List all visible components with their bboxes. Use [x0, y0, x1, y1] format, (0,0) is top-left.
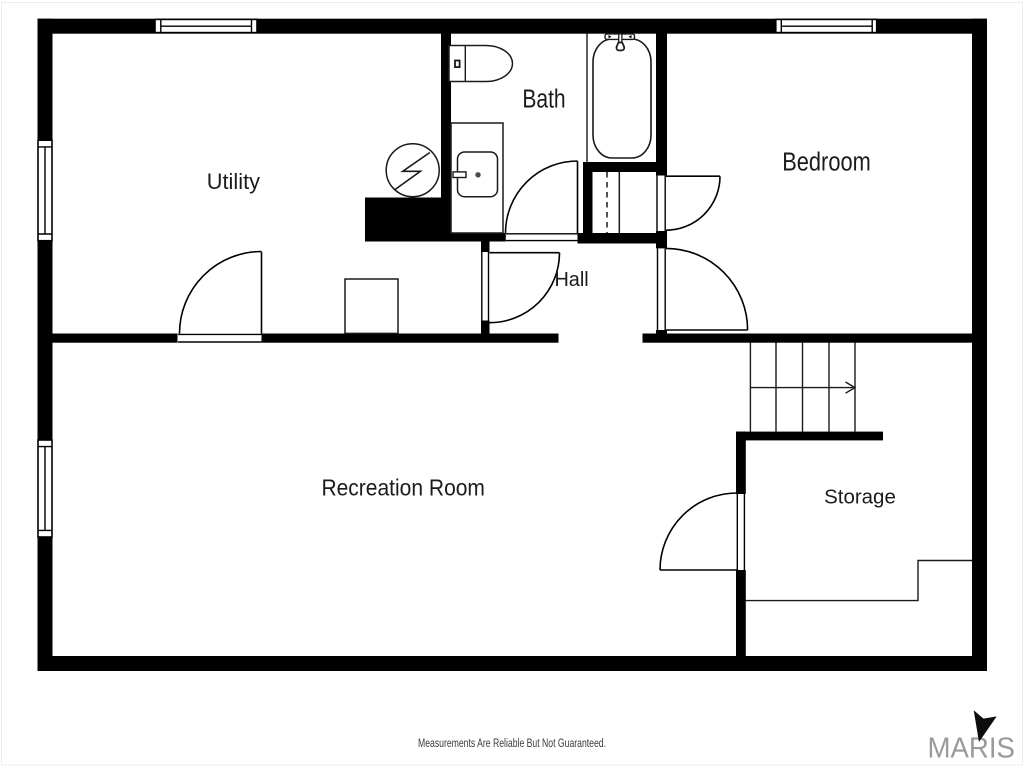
svg-text:Bedroom: Bedroom — [782, 147, 871, 177]
svg-text:MARIS: MARIS — [927, 733, 1015, 765]
svg-text:Utility: Utility — [207, 169, 260, 194]
svg-text:Storage: Storage — [824, 485, 896, 508]
svg-text:Hall: Hall — [554, 269, 588, 291]
svg-text:Measurements Are Reliable But: Measurements Are Reliable But Not Guaran… — [418, 736, 606, 750]
svg-text:Recreation Room: Recreation Room — [321, 475, 485, 501]
svg-text:Bath: Bath — [522, 83, 565, 113]
